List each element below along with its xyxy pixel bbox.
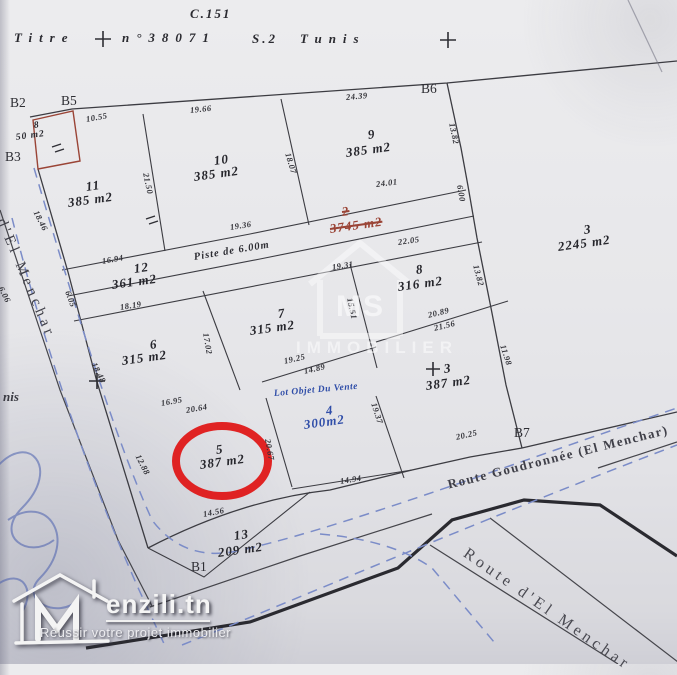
title-section: S.2 — [252, 31, 278, 47]
logo-tagline: Réussir votre projet immobilier — [40, 625, 231, 640]
watermark-initials: MS — [336, 290, 385, 324]
handwritten-fragment: nis — [3, 389, 19, 405]
boundary-marker-b3: B3 — [5, 149, 21, 165]
cadastral-plan-scan: C.151 Titre n°38071 S.2 Tunis 850 m21138… — [0, 0, 677, 664]
logo-brand: enzili.tn — [106, 589, 212, 620]
logo-underline — [106, 620, 210, 622]
sheet-reference: C.151 — [190, 6, 231, 22]
boundary-marker-b5: B5 — [61, 93, 77, 109]
title-city: Tunis — [300, 31, 366, 47]
title-number: n°38071 — [122, 30, 216, 46]
boundary-marker-b2: B2 — [10, 95, 26, 111]
dimension-label: 24.39 — [346, 90, 368, 102]
title-label: Titre — [14, 30, 75, 46]
boundary-marker-b6: B6 — [421, 81, 437, 97]
watermark-text: IMMOBILIER — [296, 338, 458, 358]
boundary-marker-b7: B7 — [514, 425, 530, 441]
menzili-logo: enzili.tn Réussir votre projet immobilie… — [10, 563, 260, 663]
